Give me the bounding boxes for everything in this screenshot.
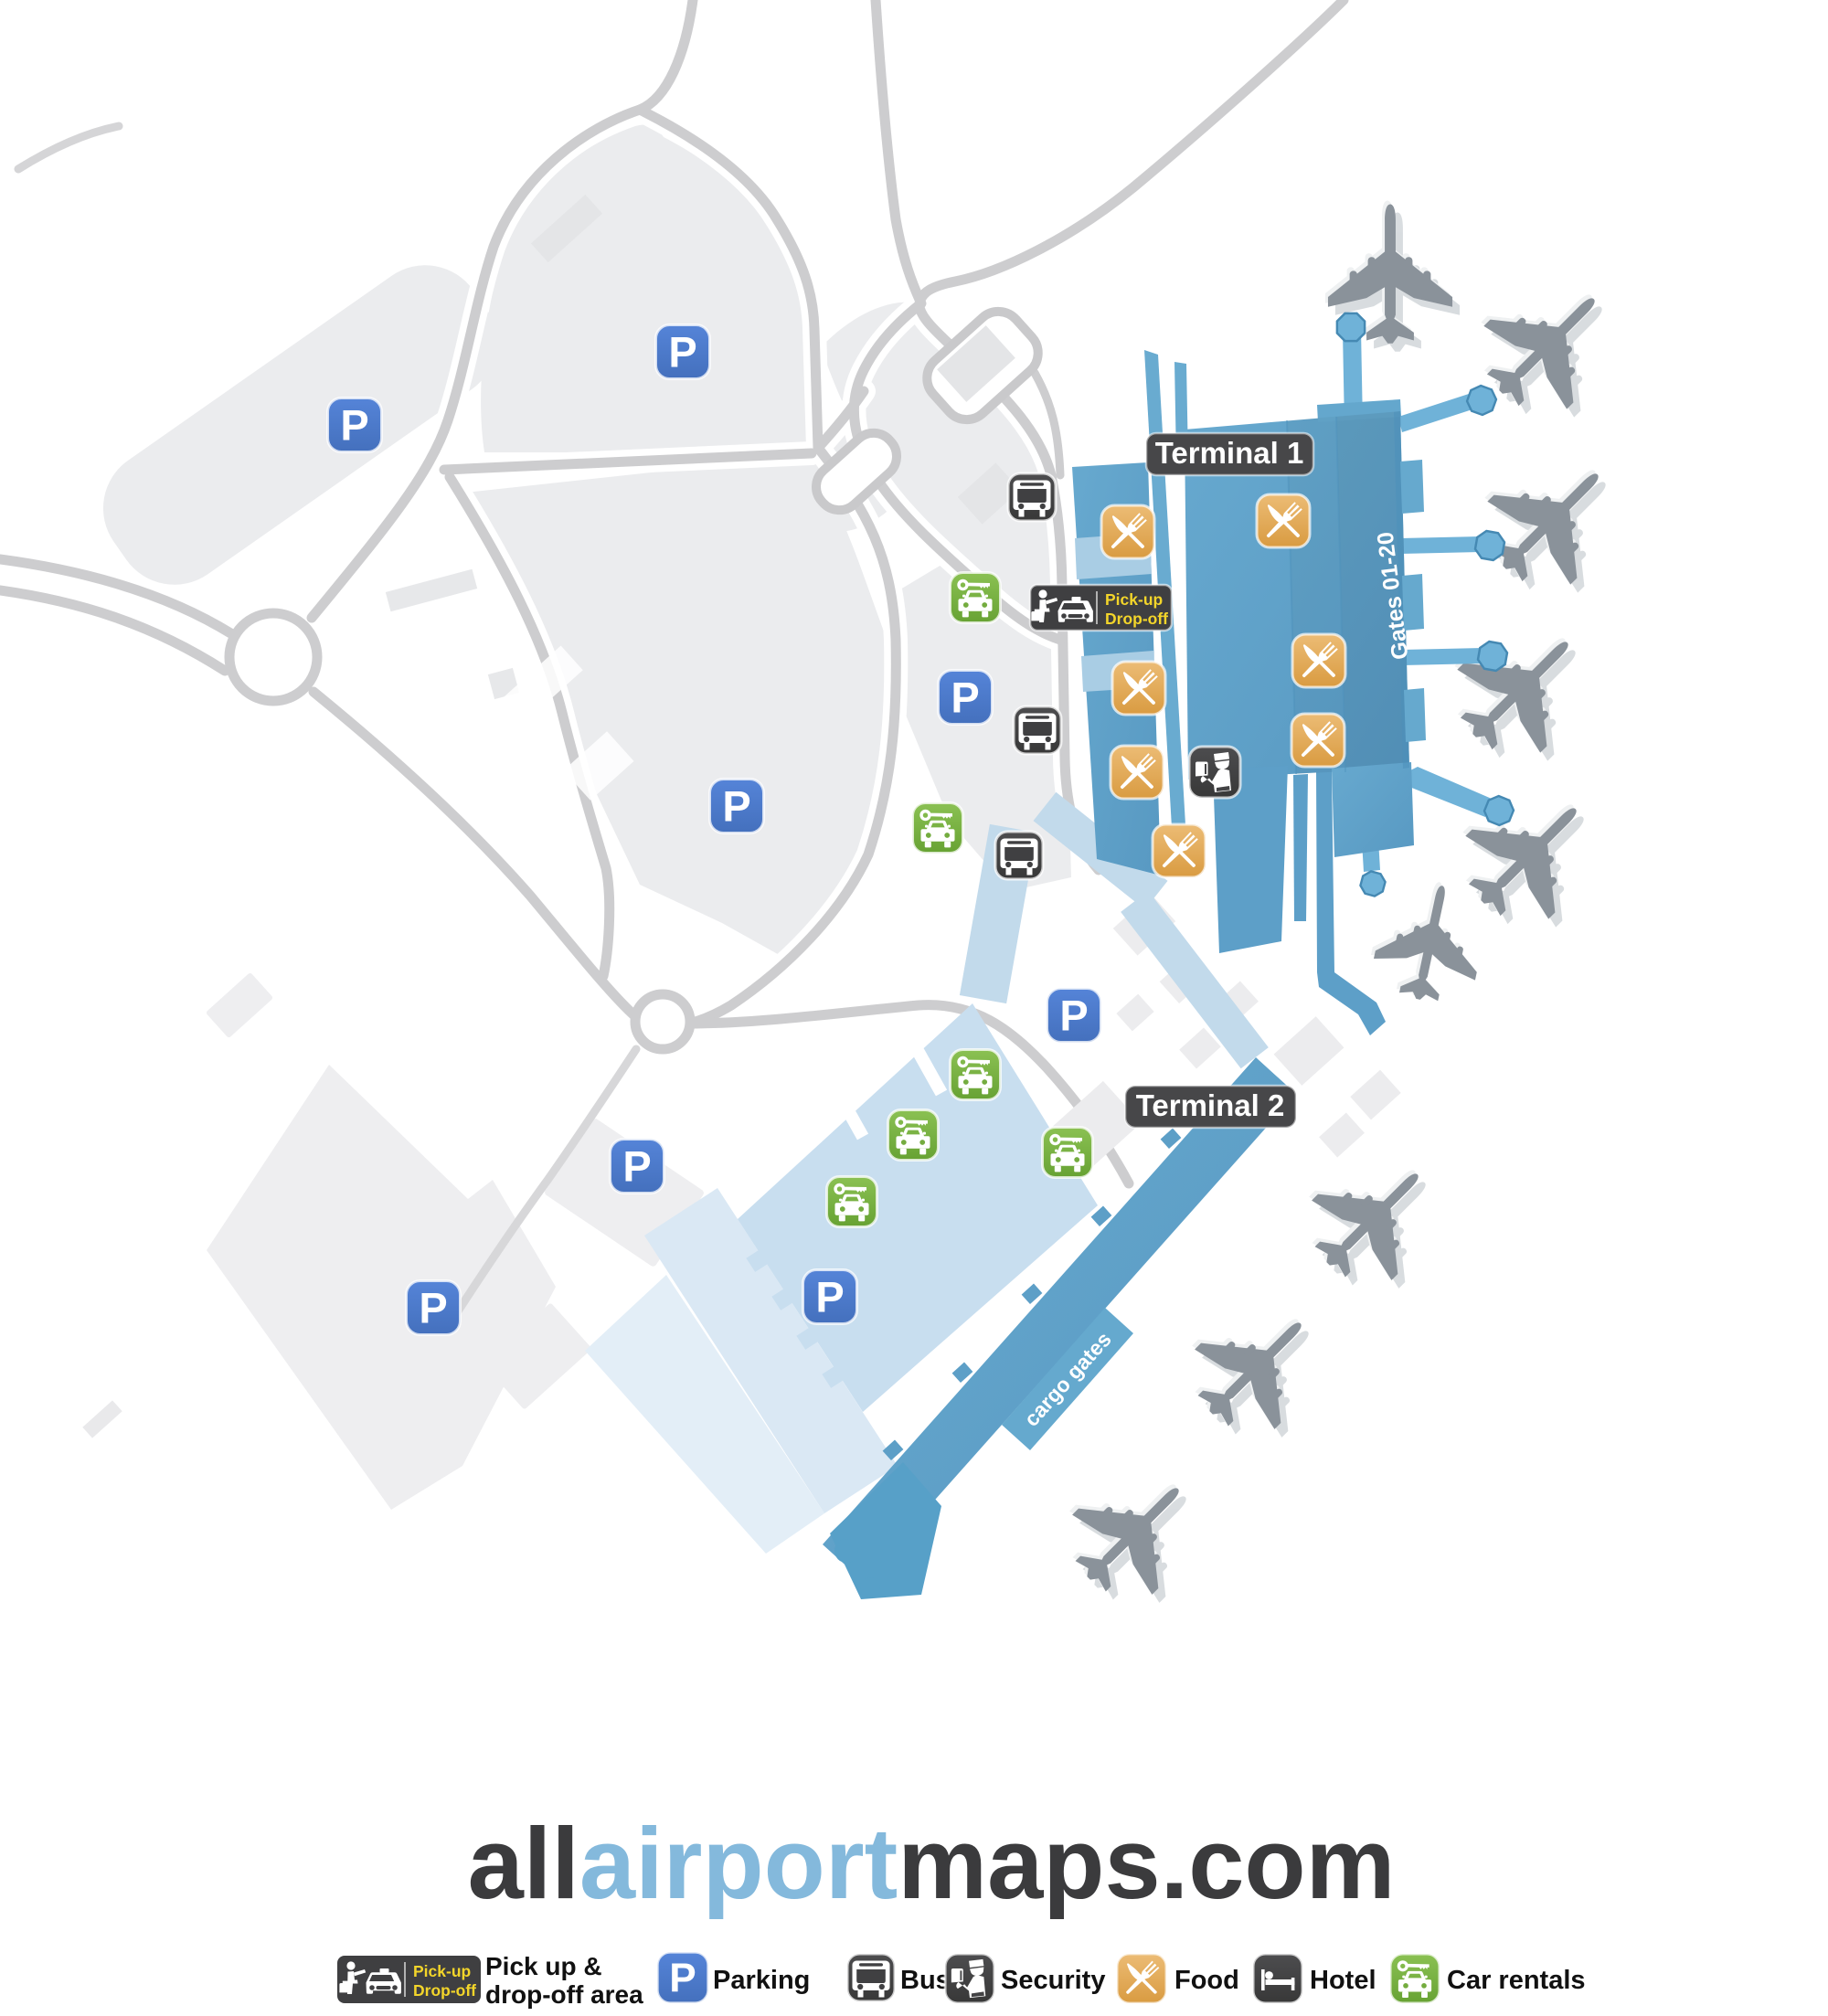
svg-text:Parking: Parking bbox=[713, 1966, 810, 1995]
svg-text:Security: Security bbox=[1001, 1966, 1105, 1995]
svg-text:Drop-off: Drop-off bbox=[413, 1981, 476, 2000]
svg-text:Pick up &: Pick up & bbox=[485, 1952, 602, 1980]
svg-text:allairportmaps.com: allairportmaps.com bbox=[468, 1808, 1396, 1920]
svg-text:Pick-up: Pick-up bbox=[1105, 590, 1163, 609]
svg-text:Bus: Bus bbox=[900, 1966, 951, 1995]
svg-text:Drop-off: Drop-off bbox=[1105, 610, 1168, 628]
svg-text:drop-off area: drop-off area bbox=[485, 1980, 643, 2009]
svg-text:Food: Food bbox=[1174, 1966, 1239, 1995]
svg-text:Terminal 1: Terminal 1 bbox=[1155, 436, 1304, 470]
svg-text:Terminal 2: Terminal 2 bbox=[1136, 1088, 1285, 1122]
svg-text:Car rentals: Car rentals bbox=[1447, 1966, 1586, 1995]
svg-text:Pick-up: Pick-up bbox=[413, 1962, 471, 1980]
svg-text:Hotel: Hotel bbox=[1310, 1966, 1376, 1995]
